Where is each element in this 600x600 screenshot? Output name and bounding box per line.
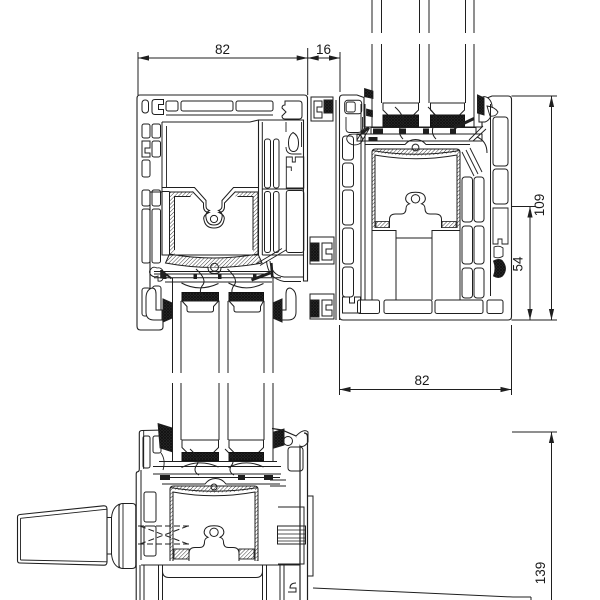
svg-text:82: 82: [215, 42, 230, 57]
svg-text:54: 54: [511, 256, 526, 272]
svg-text:139: 139: [533, 562, 548, 585]
svg-text:82: 82: [414, 373, 429, 388]
svg-text:16: 16: [316, 42, 331, 57]
svg-text:109: 109: [532, 194, 547, 217]
